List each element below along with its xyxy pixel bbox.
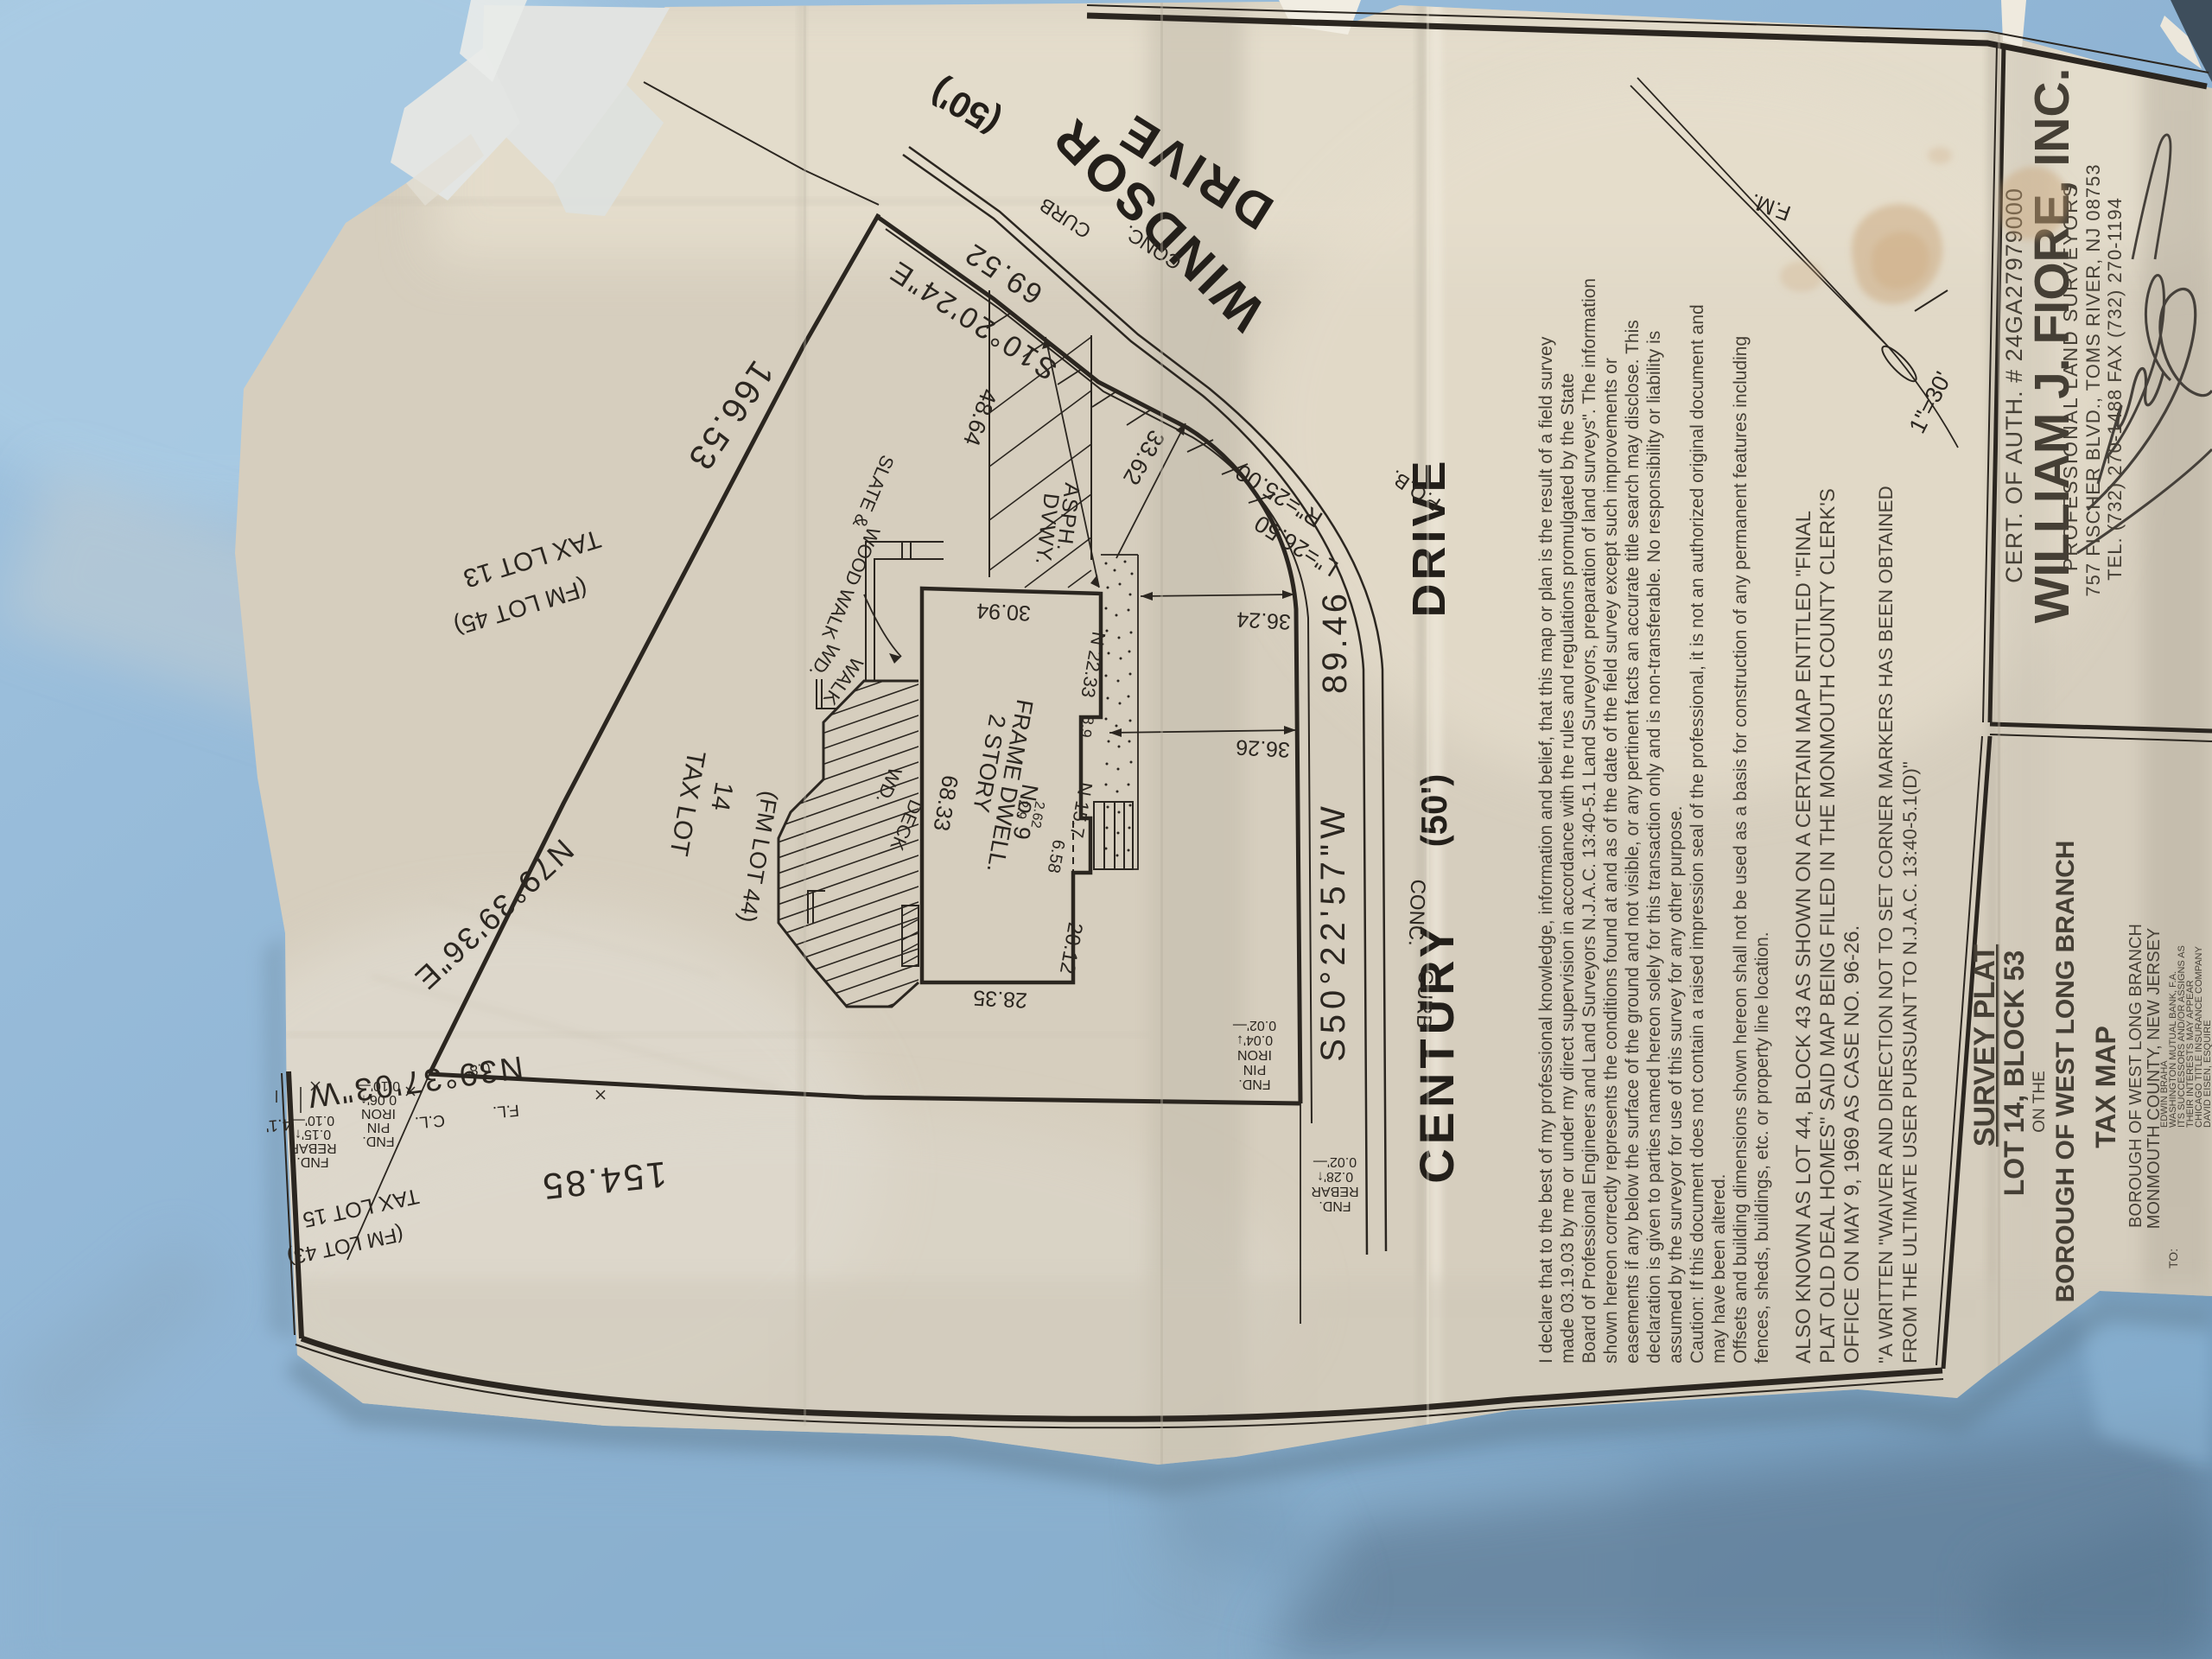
svg-text:REBAR: REBAR	[1311, 1184, 1358, 1198]
svg-text:0.10'—: 0.10'—	[357, 1078, 400, 1093]
svg-text:30.94: 30.94	[976, 598, 1032, 625]
svg-text:CERT. OF AUTH. # 24GA27979000: CERT. OF AUTH. # 24GA27979000	[2001, 188, 2027, 583]
svg-text:BOROUGH OF WEST LONG BRANCH: BOROUGH OF WEST LONG BRANCH	[2126, 924, 2145, 1228]
svg-text:FND.: FND.	[1238, 1077, 1270, 1091]
svg-text:easements if any below the sur: easements if any below the surface of th…	[1623, 320, 1643, 1363]
svg-text:PIN: PIN	[367, 1120, 391, 1135]
svg-text:4.1': 4.1'	[265, 1115, 293, 1135]
svg-text:F.L.: F.L.	[492, 1101, 519, 1122]
svg-text:FND.: FND.	[296, 1154, 328, 1169]
svg-text:declaration is given to partie: declaration is given to parties named he…	[1644, 331, 1664, 1363]
svg-text:OFFICE ON MAY 9, 1969 AS CASE: OFFICE ON MAY 9, 1969 AS CASE NO. 96-26.	[1840, 925, 1864, 1363]
svg-text:TAX MAP: TAX MAP	[2090, 1026, 2121, 1148]
svg-text:DAVID EISEN, ESQUIRE: DAVID EISEN, ESQUIRE	[2202, 1020, 2212, 1128]
svg-text:89.46: 89.46	[1316, 590, 1354, 694]
svg-text:0.10'—: 0.10'—	[291, 1113, 334, 1128]
svg-text:8.9: 8.9	[1077, 715, 1097, 739]
svg-text:36.26: 36.26	[1236, 734, 1291, 761]
svg-text:CURB: CURB	[1412, 969, 1437, 1029]
svg-text:PIN: PIN	[1243, 1062, 1267, 1077]
svg-text:"A WRITTEN "WAIVER AND DIRECTI: "A WRITTEN "WAIVER AND DIRECTION NOT TO …	[1875, 486, 1897, 1363]
svg-text:FROM THE ULTIMATE USER PURSUAN: FROM THE ULTIMATE USER PURSUANT TO N.J.A…	[1899, 761, 1921, 1363]
svg-text:LOT 14, BLOCK 53: LOT 14, BLOCK 53	[1999, 950, 2030, 1197]
svg-text:Caution: If this document doe: Caution: If this document does not conta…	[1688, 304, 1707, 1363]
svg-text:ALSO KNOWN AS LOT 44, BLOCK 43: ALSO KNOWN AS LOT 44, BLOCK 43 AS SHOWN …	[1792, 511, 1815, 1363]
svg-text:made 03.19.03 by me or under: made 03.19.03 by me or under my direct s…	[1558, 373, 1578, 1363]
svg-text:14: 14	[705, 779, 738, 813]
svg-text:PLAT OLD DEAL HOMES" SAID MAP: PLAT OLD DEAL HOMES" SAID MAP BEING FILE…	[1816, 488, 1840, 1363]
svg-text:may have been altered.: may have been altered.	[1709, 1174, 1729, 1363]
svg-text:0.02'—: 0.02'—	[1313, 1154, 1357, 1169]
svg-text:0.06'↑: 0.06'↑	[360, 1092, 397, 1107]
svg-text:(50'): (50')	[1414, 774, 1454, 848]
svg-text:36.24: 36.24	[1236, 607, 1292, 633]
svg-text:C.L.: C.L.	[414, 1110, 446, 1131]
svg-text:IRON: IRON	[1237, 1047, 1272, 1062]
svg-text:FND.: FND.	[1319, 1198, 1351, 1213]
svg-text:PROFESSIONAL LAND SURVEYORS: PROFESSIONAL LAND SURVEYORS	[2059, 182, 2082, 571]
svg-text:0.04'↓: 0.04'↓	[1236, 1033, 1273, 1047]
svg-text:Offsets and building dimension: Offsets and building dimensions shown he…	[1731, 336, 1751, 1363]
svg-text:CONC.: CONC.	[1404, 879, 1430, 946]
svg-text:0.02'—: 0.02'—	[1233, 1018, 1276, 1033]
svg-text:BOROUGH OF WEST LONG BRANCH: BOROUGH OF WEST LONG BRANCH	[2051, 841, 2080, 1303]
svg-text:TEL. (732) 270-1488 FAX (732: TEL. (732) 270-1488 FAX (732) 270-1194	[2104, 197, 2126, 581]
svg-text:ON THE: ON THE	[2031, 1071, 2049, 1132]
svg-text:assumed by the surveyor for us: assumed by the surveyor for use of this …	[1666, 806, 1686, 1363]
svg-text:SURVEY PLAT: SURVEY PLAT	[1968, 944, 2001, 1147]
svg-text:IRON: IRON	[361, 1106, 396, 1121]
svg-text:fences, sheds, buildings, etc.: fences, sheds, buildings, etc. or proper…	[1752, 931, 1772, 1363]
svg-text:757 FISCHER BLVD., TOMS RIVER,: 757 FISCHER BLVD., TOMS RIVER, NJ 08753	[2082, 163, 2104, 596]
svg-text:S50°22'57"W: S50°22'57"W	[1314, 801, 1352, 1062]
svg-text:shown hereon correctly represe: shown hereon correctly represents the co…	[1601, 358, 1621, 1363]
svg-text:I declare that to the best of: I declare that to the best of my profess…	[1536, 336, 1556, 1363]
svg-text:0.28'↑: 0.28'↑	[1317, 1169, 1353, 1184]
svg-text:TO:: TO:	[2166, 1249, 2180, 1268]
svg-text:CENTURY: CENTURY	[1409, 921, 1464, 1184]
svg-text:REBAR: REBAR	[289, 1141, 336, 1155]
svg-text:28.35: 28.35	[973, 985, 1028, 1012]
svg-text:Board of Professional Engineer: Board of Professional Engineers and Land…	[1580, 278, 1599, 1363]
svg-text:FND.: FND.	[362, 1134, 394, 1148]
svg-text:0.15'↑: 0.15'↑	[295, 1127, 331, 1141]
